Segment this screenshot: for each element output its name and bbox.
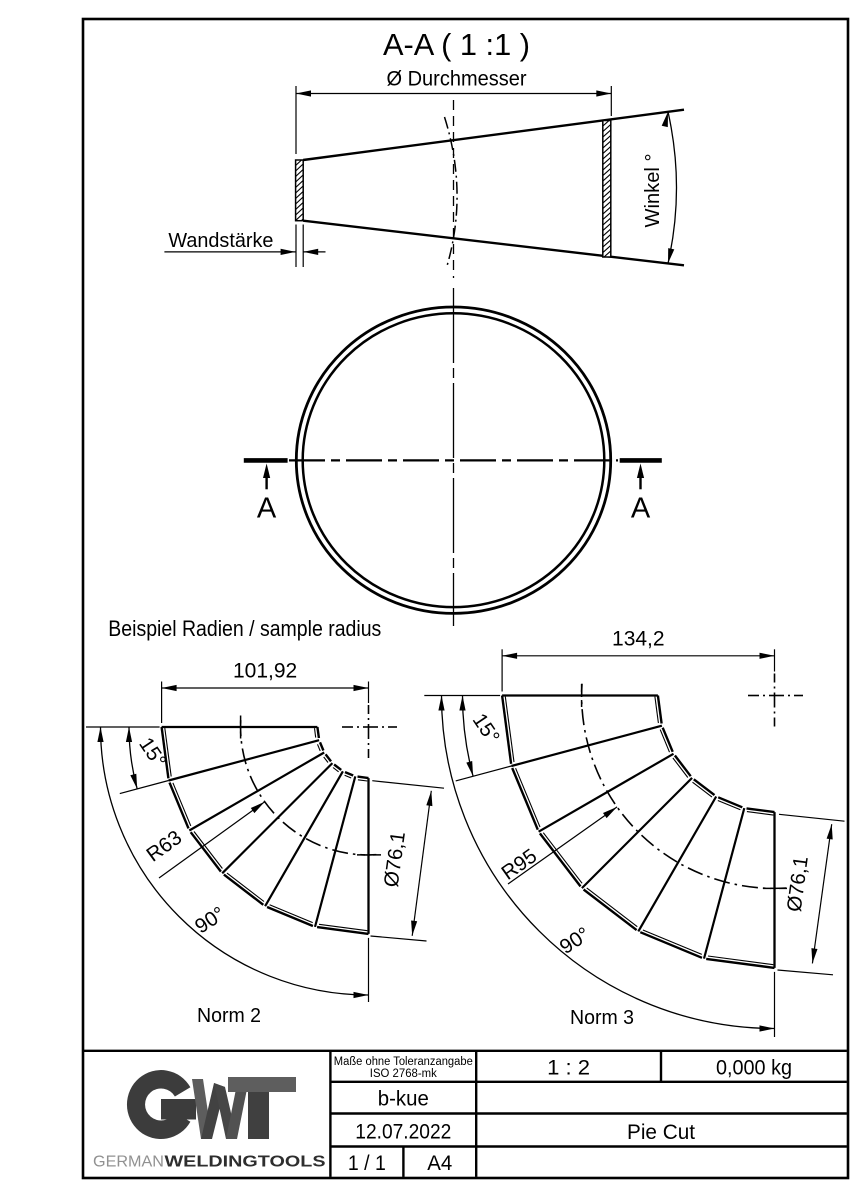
svg-text:A: A <box>257 493 277 525</box>
svg-text:Norm 3: Norm 3 <box>570 1006 634 1029</box>
svg-text:WELDINGTOOLS: WELDINGTOOLS <box>165 1154 326 1171</box>
svg-text:Wandstärke: Wandstärke <box>168 229 273 252</box>
svg-text:GERMAN: GERMAN <box>93 1154 164 1171</box>
svg-text:134,2: 134,2 <box>612 627 665 650</box>
svg-text:Winkel °: Winkel ° <box>641 154 664 228</box>
svg-text:b-kue: b-kue <box>378 1088 429 1111</box>
svg-text:12.07.2022: 12.07.2022 <box>355 1121 451 1144</box>
svg-text:0,000 kg: 0,000 kg <box>716 1057 792 1080</box>
svg-text:A: A <box>631 493 651 525</box>
svg-text:Norm 2: Norm 2 <box>197 1004 261 1027</box>
svg-text:Maße ohne Toleranzangabe: Maße ohne Toleranzangabe <box>334 1056 473 1068</box>
svg-text:Ø Durchmesser: Ø Durchmesser <box>387 67 527 90</box>
svg-text:A4: A4 <box>427 1152 452 1175</box>
svg-text:1 : 2: 1 : 2 <box>547 1057 590 1080</box>
svg-text:1 / 1: 1 / 1 <box>348 1152 386 1175</box>
svg-text:Beispiel Radien / sample radiu: Beispiel Radien / sample radius <box>108 616 381 641</box>
svg-text:A-A ( 1 :1 ): A-A ( 1 :1 ) <box>383 27 530 62</box>
svg-text:Pie Cut: Pie Cut <box>627 1121 695 1144</box>
svg-text:ISO 2768-mk: ISO 2768-mk <box>370 1068 437 1080</box>
svg-text:101,92: 101,92 <box>233 660 297 683</box>
